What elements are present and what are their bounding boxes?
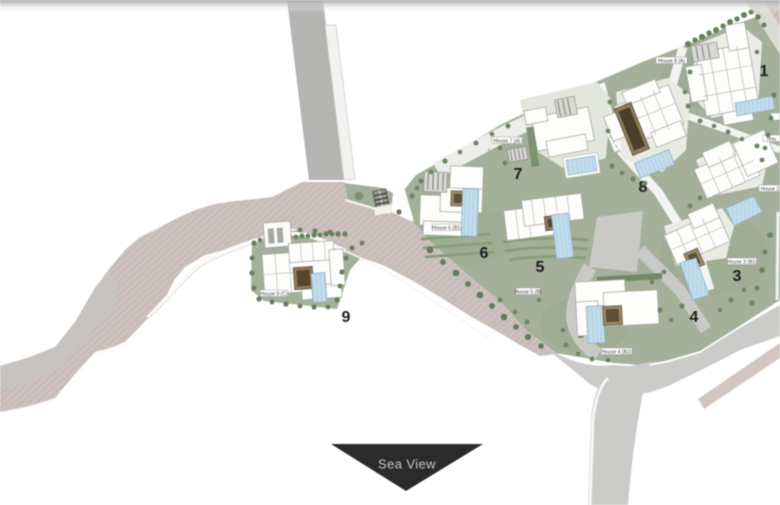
svg-text:House 6 (B1): House 6 (B1) (432, 226, 462, 232)
svg-text:House 8 (A): House 8 (A) (658, 59, 685, 65)
svg-text:House 4 (B2): House 4 (B2) (602, 350, 632, 356)
svg-text:5: 5 (536, 259, 545, 276)
svg-text:3: 3 (733, 268, 742, 285)
svg-text:House 2: House 2 (761, 187, 780, 193)
svg-text:House 5 (B): House 5 (B) (515, 290, 542, 296)
svg-text:Sea View: Sea View (378, 457, 436, 472)
svg-text:House 7 (A): House 7 (A) (494, 139, 521, 145)
svg-text:1: 1 (760, 63, 769, 80)
svg-text:7: 7 (514, 166, 523, 183)
svg-text:9: 9 (342, 309, 351, 326)
svg-text:4: 4 (690, 309, 699, 326)
svg-text:House 3 (B1): House 3 (B1) (727, 260, 757, 266)
svg-text:6: 6 (480, 245, 489, 262)
svg-text:House 9 (C): House 9 (C) (261, 292, 288, 298)
